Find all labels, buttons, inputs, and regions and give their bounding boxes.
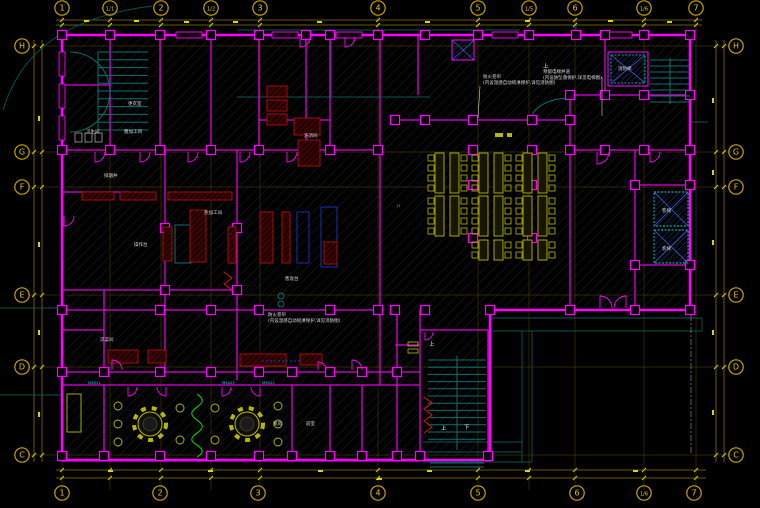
grid-bubble: 2 bbox=[153, 486, 167, 500]
column bbox=[255, 368, 264, 377]
grid-bubble: 3 bbox=[253, 1, 267, 15]
column bbox=[572, 31, 581, 40]
grid-bubble: G bbox=[15, 145, 29, 159]
column bbox=[631, 306, 640, 315]
column bbox=[255, 31, 264, 40]
grid-bubble: 1/2 bbox=[204, 1, 218, 15]
annotation-note: (内设温感自动喷淋保护,详见消防图) bbox=[268, 317, 341, 324]
grid-bubble-label: E bbox=[733, 291, 738, 300]
column bbox=[391, 116, 400, 125]
column bbox=[686, 31, 695, 40]
grid-bubble-label: 2 bbox=[157, 489, 162, 498]
grid-bubble-label: 4 bbox=[375, 4, 380, 13]
column bbox=[374, 146, 383, 155]
column bbox=[288, 452, 297, 461]
floor-plan-canvas[interactable]: 11/121/23451/561/671234561/67HGFEDCHGFED… bbox=[0, 0, 760, 508]
door-tag: M1022 bbox=[222, 380, 236, 385]
room-label: 凉菜间 bbox=[100, 336, 114, 343]
room-label: 更衣室 bbox=[128, 100, 142, 107]
grid-bubble: 4 bbox=[371, 1, 385, 15]
grid-bubble-label: 6 bbox=[572, 4, 577, 13]
grid-bubble-label: 6 bbox=[574, 489, 579, 498]
grid-bubble-label: C bbox=[733, 451, 739, 460]
grid-bubble: 6 bbox=[570, 486, 584, 500]
grid-bubble-label: G bbox=[19, 148, 25, 157]
grid-bubble: H bbox=[15, 39, 29, 53]
grid-bubble-label: 1/6 bbox=[640, 7, 648, 13]
grid-bubble: 1/1 bbox=[103, 1, 117, 15]
grid-bubble: E bbox=[15, 288, 29, 302]
grid-bubble-label: 3 bbox=[257, 4, 262, 13]
grid-bubble-label: 7 bbox=[691, 489, 696, 498]
room-label: 售饭台 bbox=[285, 275, 299, 282]
column bbox=[156, 31, 165, 40]
grid-bubble-label: H bbox=[733, 42, 739, 51]
column bbox=[302, 31, 311, 40]
column bbox=[601, 146, 610, 155]
grid-bubble-label: 1/6 bbox=[640, 492, 648, 498]
room-label: 客梯 bbox=[662, 207, 671, 214]
grid-bubble: C bbox=[15, 448, 29, 462]
grid-bubble-label: 3 bbox=[255, 489, 260, 498]
annotation-note: 防火卷帘 bbox=[483, 73, 501, 80]
column bbox=[686, 306, 695, 315]
column bbox=[486, 306, 495, 315]
door-tag: M1021 bbox=[88, 380, 102, 385]
room-label: 消防梯 bbox=[618, 65, 632, 72]
column bbox=[374, 31, 383, 40]
column bbox=[207, 368, 216, 377]
column bbox=[106, 146, 115, 155]
column bbox=[156, 146, 165, 155]
grid-bubble-label: F bbox=[734, 183, 739, 192]
elevator-shaft bbox=[654, 230, 688, 263]
column bbox=[255, 146, 264, 155]
grid-bubble-label: 7 bbox=[693, 4, 698, 13]
grid-bubble: D bbox=[15, 360, 29, 374]
grid-bubble-label: C bbox=[19, 451, 25, 460]
reserved-shaft bbox=[452, 40, 474, 60]
column bbox=[421, 306, 430, 315]
grid-bubble: 7 bbox=[687, 486, 701, 500]
column bbox=[474, 31, 483, 40]
column bbox=[640, 146, 649, 155]
column bbox=[686, 146, 695, 155]
column bbox=[393, 368, 402, 377]
column bbox=[255, 452, 264, 461]
room-label: 操作台 bbox=[134, 241, 148, 248]
column bbox=[326, 31, 335, 40]
grid-bubble-label: D bbox=[19, 363, 25, 372]
column bbox=[326, 452, 335, 461]
column bbox=[156, 306, 165, 315]
column bbox=[469, 146, 478, 155]
column bbox=[374, 306, 383, 315]
grid-bubble-label: 2 bbox=[158, 4, 163, 13]
column bbox=[416, 452, 425, 461]
grid-bubble-label: 4 bbox=[375, 489, 380, 498]
column bbox=[391, 306, 400, 315]
grid-bubble-label: E bbox=[19, 291, 24, 300]
column bbox=[326, 146, 335, 155]
grid-bubble: 4 bbox=[371, 486, 385, 500]
stair-direction-label: 下 bbox=[464, 424, 470, 431]
column bbox=[156, 452, 165, 461]
stair-direction-label: 上 bbox=[429, 340, 435, 348]
grid-bubble-label: 1 bbox=[59, 4, 64, 13]
room-label: 热加工间 bbox=[204, 209, 222, 216]
room-label: 粗加工间 bbox=[124, 128, 142, 135]
grid-bubble: 2 bbox=[154, 1, 168, 15]
column bbox=[601, 31, 610, 40]
column bbox=[469, 234, 478, 243]
grid-bubble-label: H bbox=[19, 42, 25, 51]
annotation-note: (内设防坠落保护,详见电梯图) bbox=[543, 74, 602, 81]
grid-bubble-label: 1/5 bbox=[525, 7, 533, 13]
door-tag: J1 bbox=[396, 203, 401, 208]
cad-viewport[interactable]: 11/121/23451/561/671234561/67HGFEDCHGFED… bbox=[0, 0, 760, 508]
column bbox=[207, 31, 216, 40]
column bbox=[686, 181, 695, 190]
grid-bubble: 7 bbox=[689, 1, 703, 15]
column bbox=[566, 116, 575, 125]
column bbox=[469, 116, 478, 125]
room-label: 卫生间 bbox=[86, 128, 100, 135]
column bbox=[255, 306, 264, 315]
room-label: 库房 bbox=[273, 420, 282, 427]
column bbox=[207, 452, 216, 461]
door-tag: M1022 bbox=[262, 380, 276, 385]
grid-bubble-label: 1 bbox=[59, 489, 64, 498]
grid-bubble: 6 bbox=[568, 1, 582, 15]
elevator-shaft bbox=[654, 192, 688, 226]
room-label: 客梯 bbox=[662, 245, 671, 252]
column bbox=[525, 31, 534, 40]
column bbox=[58, 146, 67, 155]
stair-direction-label: 上 bbox=[441, 424, 447, 432]
column bbox=[161, 286, 170, 295]
grid-bubble: 5 bbox=[471, 486, 485, 500]
column bbox=[100, 452, 109, 461]
column bbox=[528, 116, 537, 125]
column bbox=[566, 306, 575, 315]
column bbox=[106, 31, 115, 40]
grid-bubble: 1/5 bbox=[522, 1, 536, 15]
column bbox=[100, 368, 109, 377]
column bbox=[233, 286, 242, 295]
grid-bubble-label: F bbox=[20, 183, 25, 192]
column bbox=[58, 306, 67, 315]
grid-bubble-label: 1/2 bbox=[207, 7, 215, 13]
annotation-note: 防火卷帘 bbox=[268, 311, 286, 318]
column bbox=[393, 452, 402, 461]
grid-bubble: 3 bbox=[251, 486, 265, 500]
room-label: 洗消间 bbox=[304, 132, 318, 139]
column bbox=[686, 91, 695, 100]
column bbox=[484, 452, 493, 461]
grid-bubble-label: 5 bbox=[475, 489, 480, 498]
column bbox=[207, 306, 216, 315]
grid-bubble: 1 bbox=[55, 1, 69, 15]
column bbox=[207, 146, 216, 155]
grid-bubble: F bbox=[15, 180, 29, 194]
column bbox=[288, 368, 297, 377]
column bbox=[358, 452, 367, 461]
column bbox=[58, 368, 67, 377]
column bbox=[566, 91, 575, 100]
room-label: 前室 bbox=[306, 420, 315, 427]
column bbox=[631, 261, 640, 270]
grid-bubble-label: 5 bbox=[475, 4, 480, 13]
column bbox=[631, 181, 640, 190]
column bbox=[640, 91, 649, 100]
column bbox=[326, 306, 335, 315]
column bbox=[58, 452, 67, 461]
grid-bubble-label: G bbox=[733, 148, 739, 157]
column bbox=[566, 146, 575, 155]
room-label: 排烟井 bbox=[104, 172, 118, 179]
column bbox=[326, 368, 335, 377]
grid-bubble: 1 bbox=[55, 486, 69, 500]
grid-bubble: 1/6 bbox=[637, 1, 651, 15]
stair-direction-label: 上 bbox=[543, 62, 549, 70]
column bbox=[421, 116, 430, 125]
column bbox=[58, 31, 67, 40]
column bbox=[156, 368, 165, 377]
grid-bubble-label: D bbox=[733, 363, 739, 372]
column bbox=[421, 31, 430, 40]
grid-bubble-label: 1/1 bbox=[106, 7, 114, 13]
column bbox=[640, 31, 649, 40]
grid-bubble: 5 bbox=[471, 1, 485, 15]
floor-hatch bbox=[62, 35, 690, 460]
